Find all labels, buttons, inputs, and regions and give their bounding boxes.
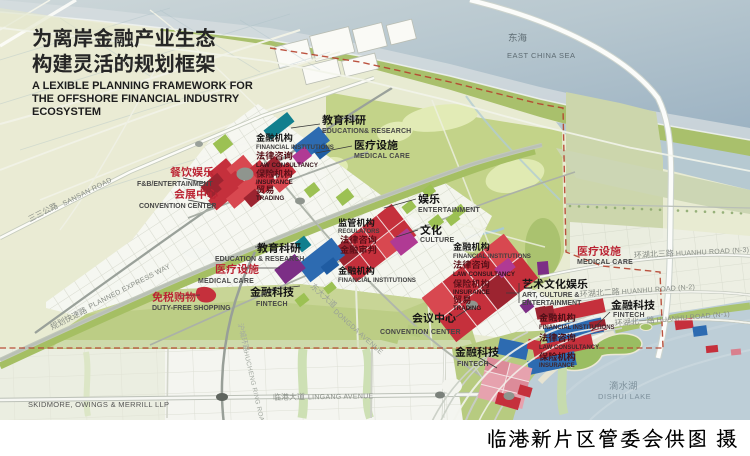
svg-text:SKIDMORE, OWINGS & MERRILL LLP: SKIDMORE, OWINGS & MERRILL LLP: [28, 400, 169, 409]
svg-text:A LEXIBLE PLANNING FRAMEWORK F: A LEXIBLE PLANNING FRAMEWORK FOR: [32, 80, 253, 92]
svg-text:DUTY-FREE SHOPPING: DUTY-FREE SHOPPING: [152, 305, 231, 312]
svg-text:INSURANCE: INSURANCE: [453, 289, 490, 296]
svg-text:INSURANCE: INSURANCE: [256, 179, 293, 186]
svg-text:MEDICAL CARE: MEDICAL CARE: [198, 278, 254, 285]
svg-text:INSURANCE: INSURANCE: [539, 363, 575, 369]
svg-text:FINANCIAL INSTITUTIONS: FINANCIAL INSTITUTIONS: [338, 277, 416, 284]
svg-text:F&B/ENTERTAINMENT: F&B/ENTERTAINMENT: [137, 181, 213, 188]
svg-text:LAW CONSULTANCY: LAW CONSULTANCY: [539, 345, 599, 351]
svg-text:FINANCIAL INSTITUTIONS: FINANCIAL INSTITUTIONS: [539, 325, 615, 331]
svg-text:ENTERTAINMENT: ENTERTAINMENT: [418, 207, 480, 214]
svg-text:FINTECH: FINTECH: [256, 301, 288, 308]
svg-text:FINTECH: FINTECH: [457, 361, 489, 368]
svg-text:DISHUI LAKE: DISHUI LAKE: [598, 392, 651, 401]
svg-text:FINANCIAL INSTITUTIONS: FINANCIAL INSTITUTIONS: [256, 144, 334, 151]
svg-text:CONVENTION CENTER: CONVENTION CENTER: [139, 203, 216, 210]
svg-text:TRADING: TRADING: [256, 195, 284, 202]
svg-text:CONVENTION CENTER: CONVENTION CENTER: [380, 329, 461, 336]
svg-text:LAW CONSULTANCY: LAW CONSULTANCY: [256, 162, 319, 169]
svg-text:TRADING: TRADING: [453, 305, 481, 312]
svg-text:ECOSYSTEM: ECOSYSTEM: [32, 106, 101, 118]
svg-text:FINANCIAL INSTITUTIONS: FINANCIAL INSTITUTIONS: [453, 253, 531, 260]
svg-text:EDUCATION& RESEARCH: EDUCATION& RESEARCH: [322, 128, 411, 135]
svg-text:MEDICAL CARE: MEDICAL CARE: [354, 153, 410, 160]
svg-text:THE OFFSHORE FINANCIAL INDUSTR: THE OFFSHORE FINANCIAL INDUSTRY: [32, 93, 240, 105]
svg-text:EDUCATION & RESEARCH: EDUCATION & RESEARCH: [215, 256, 304, 263]
svg-text:LINGANG AVENUE: LINGANG AVENUE: [308, 393, 374, 401]
svg-text:EAST CHINA SEA: EAST CHINA SEA: [507, 51, 576, 60]
svg-text:REGULATORS: REGULATORS: [338, 229, 379, 235]
svg-text:CULTURE: CULTURE: [420, 237, 454, 244]
svg-text:ENTERTAINMENT: ENTERTAINMENT: [522, 300, 582, 307]
svg-text:LAW CONSULTANCY: LAW CONSULTANCY: [453, 271, 516, 278]
svg-text:MEDICAL CARE: MEDICAL CARE: [577, 259, 633, 266]
svg-text:FINTECH: FINTECH: [613, 312, 645, 319]
svg-text:ART, CULTURE &: ART, CULTURE &: [522, 292, 579, 299]
